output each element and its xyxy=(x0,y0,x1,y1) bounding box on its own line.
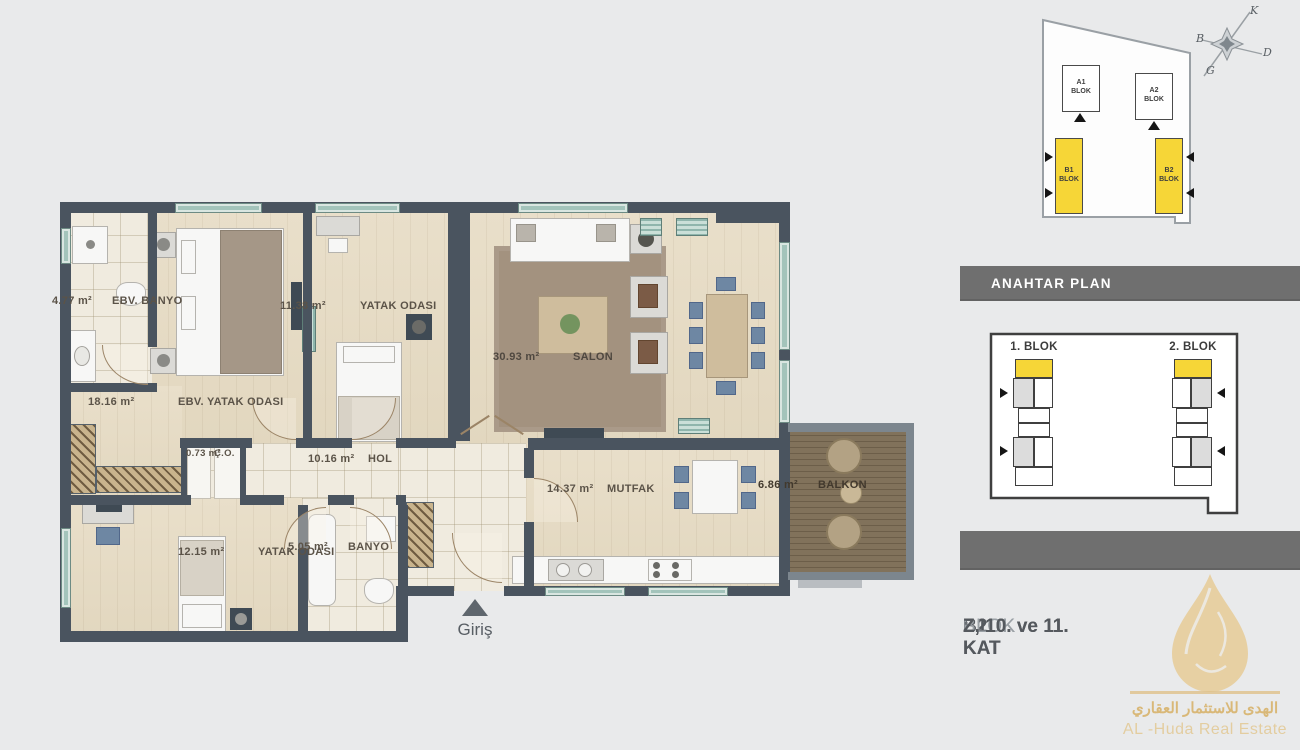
radiator xyxy=(640,218,662,236)
radiator xyxy=(678,418,710,434)
key-plan-cell xyxy=(1172,437,1191,467)
key-plan-arrow xyxy=(1217,388,1225,398)
site-arrow-b1-top xyxy=(1045,152,1053,162)
shower-drain xyxy=(86,240,95,249)
key-plan-cell xyxy=(1013,378,1034,408)
kitchen-chair xyxy=(741,466,756,483)
logo-arabic-text: الهدى للاستثمار العقاري xyxy=(1118,699,1292,717)
key-plan-cell xyxy=(1018,423,1050,437)
wall-right-b xyxy=(779,350,790,360)
wall-band2-c xyxy=(328,495,354,505)
wicker-chair xyxy=(826,514,862,550)
pillow xyxy=(343,346,395,363)
wall-bottom-left xyxy=(60,631,408,642)
desk-chair xyxy=(96,527,120,545)
key-plan-cell xyxy=(1018,408,1050,423)
wall-ebvbanyo-right xyxy=(148,213,157,347)
master-bed-blanket xyxy=(220,230,282,374)
balcony-step xyxy=(798,580,862,588)
key-plan-cell xyxy=(1176,408,1208,423)
wall-band2-d xyxy=(396,495,406,505)
dining-chair xyxy=(751,302,765,319)
key-plan-cell xyxy=(1034,437,1053,467)
compass-east-label: D xyxy=(1263,46,1272,59)
wall-right-a xyxy=(779,202,790,242)
dining-chair xyxy=(751,352,765,369)
wall-band-d xyxy=(528,438,790,450)
toilet xyxy=(364,578,394,604)
kitchen-chair xyxy=(674,466,689,483)
wall-band-c xyxy=(396,438,456,448)
wardrobe-hatch-master-left xyxy=(70,424,96,494)
wall-yatak1-salon xyxy=(448,213,470,441)
key-plan-cell xyxy=(1176,423,1208,437)
wall-band2-b xyxy=(240,495,284,505)
key-plan-unit-highlight xyxy=(1174,359,1212,378)
burner xyxy=(653,571,660,578)
alhuda-logo-emblem xyxy=(1160,572,1260,697)
wall-banyo-entry xyxy=(398,505,408,586)
site-arrow-b2-bottom xyxy=(1186,188,1194,198)
entrance-arrow-icon xyxy=(462,599,488,616)
key-plan-cell xyxy=(1174,467,1212,486)
key-plan-cell xyxy=(1172,378,1191,408)
anahtar-plan-header-bar: ANAHTAR PLAN xyxy=(960,266,1300,301)
entrance-label: Giriş xyxy=(425,620,525,640)
window-ebvbanyo-left xyxy=(61,228,71,264)
sink-basin xyxy=(556,563,570,577)
wall-band2-a xyxy=(71,495,191,505)
key-plan-arrow xyxy=(1217,446,1225,456)
sofa-pillow xyxy=(596,224,616,242)
floors-value: Z, 10. ve 11. KAT xyxy=(963,616,1079,660)
key-plan-arrow xyxy=(1000,446,1008,456)
wicker-chair xyxy=(826,438,862,474)
key-plan-block1-label: 1. BLOK xyxy=(994,341,1074,353)
site-arrow-b1-bottom xyxy=(1045,188,1053,198)
dining-table xyxy=(706,294,748,378)
pillow xyxy=(182,604,222,628)
key-plan-unit-highlight xyxy=(1015,359,1053,378)
wall-hol-mutfak-b xyxy=(524,522,534,586)
logo-underline xyxy=(1130,691,1280,694)
pillow xyxy=(181,240,196,274)
wardrobe-hatch-entry xyxy=(406,502,434,568)
floor-info-row-b2: B2 BLOK : Z, 10. ve 11. KAT xyxy=(963,616,1079,641)
pouf-cushion xyxy=(412,320,426,334)
desk-chair xyxy=(328,238,348,253)
dining-chair xyxy=(689,302,703,319)
window-kitchen-1 xyxy=(545,587,625,596)
wall-master-yatak1 xyxy=(303,213,312,441)
wall-hol-mutfak-a xyxy=(524,448,534,478)
site-block-a1-label: A1 BLOK xyxy=(1062,79,1100,97)
radiator xyxy=(676,218,708,236)
divider-bar xyxy=(960,531,1300,570)
site-arrow-b2-top xyxy=(1186,152,1194,162)
kitchen-chair xyxy=(741,492,756,509)
sink-basin xyxy=(578,563,592,577)
compass-south-label: G xyxy=(1206,64,1215,77)
kitchen-table xyxy=(692,460,738,514)
kitchen-chair xyxy=(674,492,689,509)
window-kitchen-2 xyxy=(648,587,728,596)
lamp xyxy=(157,238,170,251)
key-plan-cell xyxy=(1034,378,1053,408)
sink-bowl xyxy=(74,346,90,366)
balcony-railing-bottom xyxy=(788,572,914,580)
armchair-cushion xyxy=(638,284,658,308)
key-plan-cell xyxy=(1013,437,1034,467)
key-plan-cell xyxy=(1191,378,1212,408)
key-plan-arrow xyxy=(1000,388,1008,398)
dining-chair xyxy=(716,381,736,395)
screenshot-stage: EBV. BANYO 4.77 m² EBV. YATAK ODASI 18.1… xyxy=(0,0,1300,750)
window-dining-right-1 xyxy=(779,242,790,350)
sofa-pillow xyxy=(516,224,536,242)
wall-band-b xyxy=(296,438,352,448)
wall-co-right xyxy=(240,443,246,500)
burner xyxy=(672,562,679,569)
site-entrance-arrow-a2 xyxy=(1148,121,1160,130)
site-block-b2-label: B2 BLOK xyxy=(1155,167,1183,185)
key-plan-block2-label: 2. BLOK xyxy=(1153,341,1233,353)
window-master-top xyxy=(175,203,262,213)
dining-chair xyxy=(689,327,703,344)
wardrobe-hatch-master-bottom xyxy=(96,466,182,493)
plant xyxy=(560,314,580,334)
lamp xyxy=(235,613,247,625)
window-dining-right-2 xyxy=(779,360,790,423)
compass-west-label: B xyxy=(1196,32,1204,45)
dining-chair xyxy=(751,327,765,344)
window-yatak2-left xyxy=(61,528,71,608)
key-plan-cell xyxy=(1191,437,1212,467)
anahtar-plan-title: ANAHTAR PLAN xyxy=(960,266,1112,301)
window-salon-top xyxy=(518,203,628,213)
window-yatak1-top xyxy=(315,203,400,213)
site-entrance-arrow-a1 xyxy=(1074,113,1086,122)
compass-north-label: K xyxy=(1250,4,1258,17)
balcony-railing-right xyxy=(906,423,914,580)
site-block-a2-label: A2 BLOK xyxy=(1135,87,1173,105)
desk xyxy=(316,216,360,236)
burner xyxy=(653,562,660,569)
pillow xyxy=(181,296,196,330)
logo-english-text: AL -Huda Real Estate xyxy=(1118,721,1292,739)
dining-chair xyxy=(689,352,703,369)
key-plan-cell xyxy=(1015,467,1053,486)
site-block-b1-label: B1 BLOK xyxy=(1055,167,1083,185)
armchair-cushion xyxy=(638,340,658,364)
burner xyxy=(672,571,679,578)
wall-top xyxy=(60,202,790,213)
lamp xyxy=(157,354,170,367)
balcony-wall-top xyxy=(788,423,914,432)
dining-chair xyxy=(716,277,736,291)
wall-bottom-mid xyxy=(396,586,454,596)
